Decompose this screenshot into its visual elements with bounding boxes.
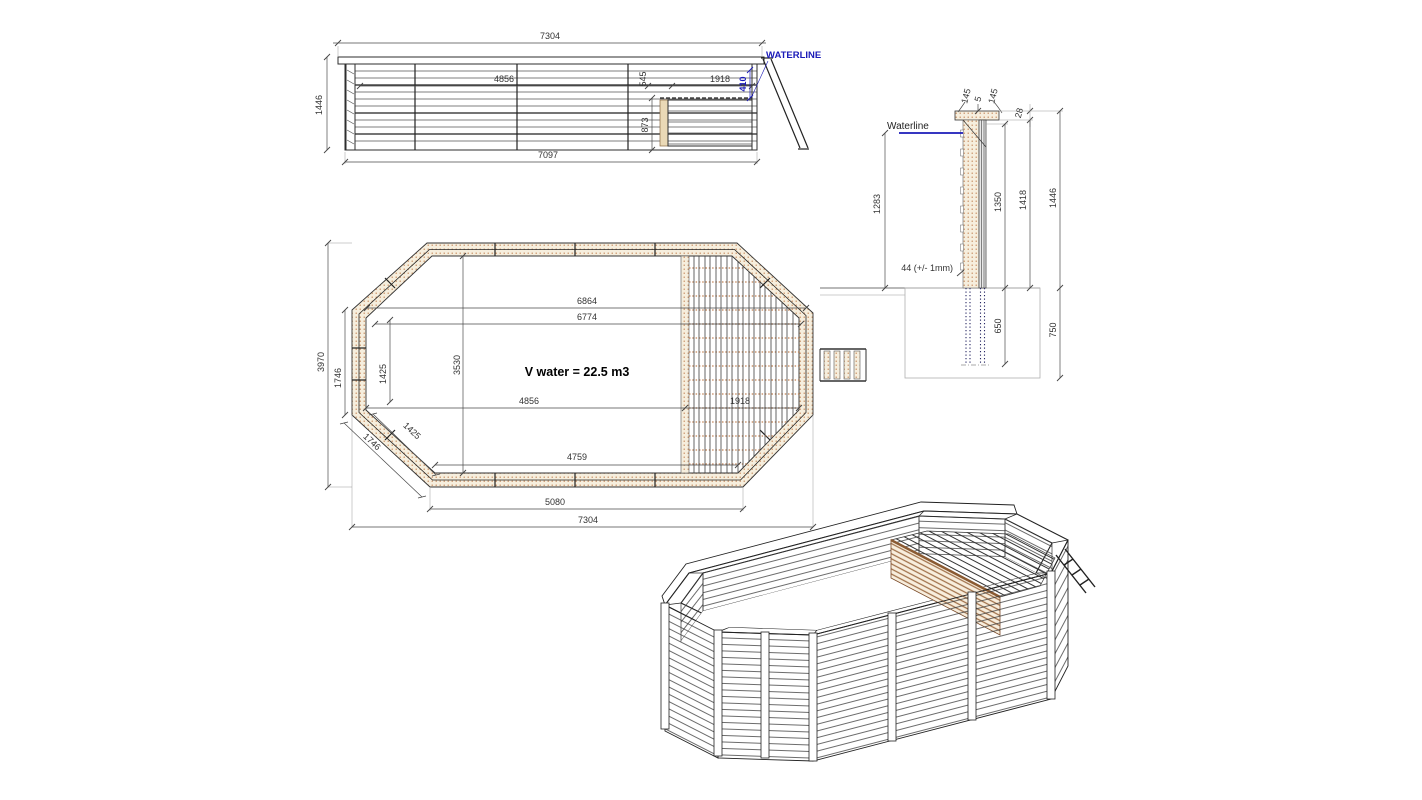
dim-under-deck-height: 873 — [640, 117, 650, 132]
dim-floor-length: 4856 — [519, 396, 539, 406]
dim-cap-gap: 5 — [973, 95, 984, 102]
dim-deck-length: 1918 — [730, 396, 750, 406]
dim-left-side-vertical: 1746 — [333, 368, 343, 388]
dim-bottom-edge: 5080 — [545, 497, 565, 507]
elevation-left-post — [346, 64, 355, 150]
elevation-pool-body — [338, 57, 809, 150]
water-volume-label: V water = 22.5 m3 — [525, 365, 630, 379]
dim-inner-height: 3530 — [452, 355, 462, 375]
section-waterline: Waterline — [887, 121, 963, 133]
dim-base-width: 7097 — [538, 150, 558, 160]
dim-inner-width: 6774 — [577, 312, 597, 322]
dim-side-panel-vertical: 1425 — [378, 364, 388, 384]
dim-overall-height: 3970 — [316, 352, 326, 372]
dim-wall-total: 1446 — [1048, 188, 1058, 208]
dim-cap-front: 145 — [959, 87, 973, 104]
isometric-view — [628, 495, 1133, 800]
elevation-ladder-icon — [761, 58, 809, 149]
dim-gap: 545 — [638, 71, 648, 86]
section-view: Waterline 145 5 145 28 1283 1350 1418 — [815, 52, 1170, 405]
dim-overall-height: 1446 — [314, 95, 324, 115]
elevation-right-post — [752, 64, 757, 150]
dim-cap-back: 145 — [986, 87, 1000, 104]
elevation-deck — [660, 98, 752, 146]
excavation-outline — [905, 288, 1040, 378]
dim-water-offset: 410 — [738, 76, 748, 91]
waterline-label: WATERLINE — [766, 50, 821, 61]
dim-overall-width-top: 7304 — [540, 31, 560, 41]
elevation-plank-joints — [355, 64, 757, 150]
dim-floor-length: 4856 — [494, 74, 514, 84]
dim-deck-length: 1918 — [710, 74, 730, 84]
waterline-label: Waterline — [887, 121, 929, 132]
dim-post-embed: 650 — [993, 318, 1003, 333]
pool-technical-drawing: 7304 1446 7097 4856 545 1918 410 873 WAT… — [0, 0, 1422, 800]
dim-inner-bottom: 4759 — [567, 452, 587, 462]
dim-cap-height: 28 — [1013, 107, 1025, 119]
dim-side-panel-diagonal: 1425 — [401, 420, 422, 441]
dim-inner-width-top: 6864 — [577, 296, 597, 306]
elevation-view: 7304 1446 7097 4856 545 1918 410 873 WAT… — [300, 18, 845, 183]
dim-plank-thickness: 44 (+/- 1mm) — [901, 263, 953, 273]
dim-wall-inner: 1350 — [993, 192, 1003, 212]
dim-water-depth: 1283 — [872, 194, 882, 214]
buried-posts — [966, 288, 985, 364]
iso-pool — [661, 502, 1095, 761]
dim-overall-width: 7304 — [578, 515, 598, 525]
dim-pit-depth: 750 — [1048, 322, 1058, 337]
section-ground — [820, 288, 1040, 378]
dim-wall-outer: 1418 — [1018, 190, 1028, 210]
